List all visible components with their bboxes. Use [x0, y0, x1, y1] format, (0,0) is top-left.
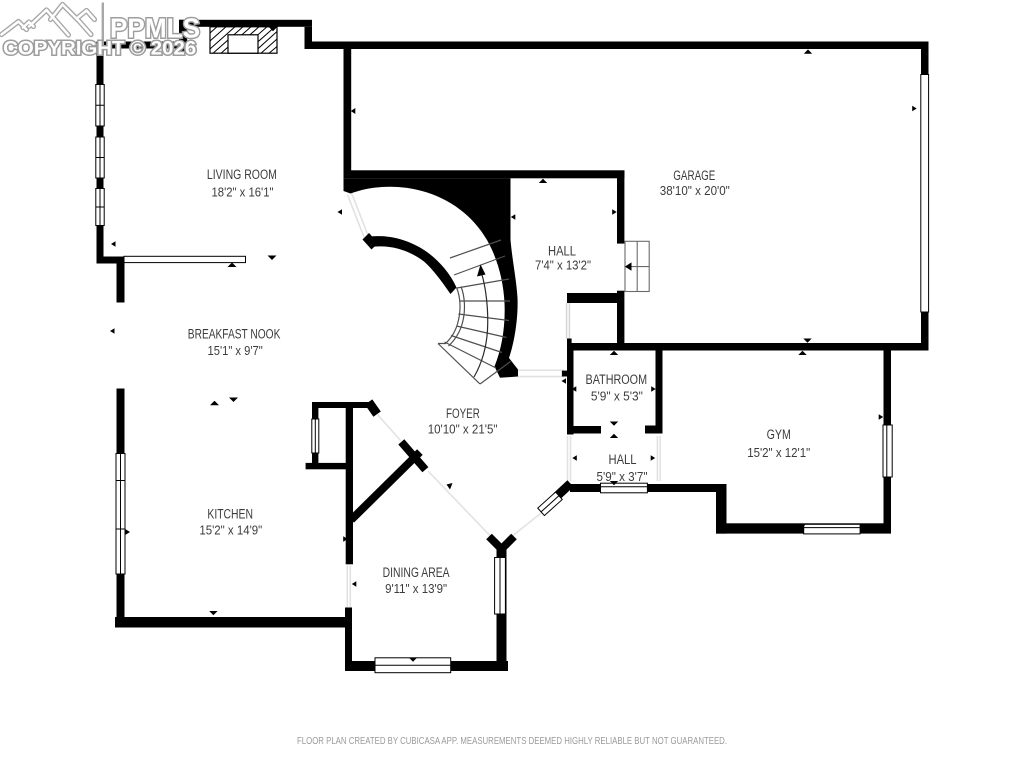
svg-text:HALL: HALL [609, 452, 637, 467]
svg-text:FOYER: FOYER [446, 406, 480, 421]
svg-text:DINING AREA: DINING AREA [383, 565, 450, 580]
svg-text:BATHROOM: BATHROOM [586, 372, 648, 387]
svg-text:7'4" x 13'2": 7'4" x 13'2" [535, 258, 591, 273]
svg-text:38'10" x 20'0": 38'10" x 20'0" [660, 183, 730, 198]
svg-text:LIVING ROOM: LIVING ROOM [207, 167, 277, 182]
svg-text:GYM: GYM [767, 427, 791, 442]
svg-text:15'2" x 14'9": 15'2" x 14'9" [199, 523, 262, 538]
svg-text:KITCHEN: KITCHEN [207, 506, 253, 521]
svg-text:15'2" x 12'1": 15'2" x 12'1" [747, 445, 810, 460]
svg-text:BREAKFAST NOOK: BREAKFAST NOOK [188, 327, 281, 342]
svg-text:GARAGE: GARAGE [673, 168, 715, 183]
svg-text:18'2" x 16'1": 18'2" x 16'1" [212, 185, 274, 200]
svg-text:10'10" x 21'5": 10'10" x 21'5" [428, 422, 498, 437]
svg-text:COPYRIGHT © 2026: COPYRIGHT © 2026 [3, 38, 196, 59]
svg-text:5'9" x 3'7": 5'9" x 3'7" [597, 469, 648, 484]
svg-text:HALL: HALL [548, 244, 576, 259]
svg-text:15'1" x 9'7": 15'1" x 9'7" [208, 343, 263, 358]
svg-text:FLOOR PLAN CREATED BY CUBICASA: FLOOR PLAN CREATED BY CUBICASA APP. MEAS… [297, 736, 727, 747]
svg-text:9'11" x 13'9": 9'11" x 13'9" [385, 581, 447, 596]
svg-text:5'9" x 5'3": 5'9" x 5'3" [591, 389, 643, 404]
